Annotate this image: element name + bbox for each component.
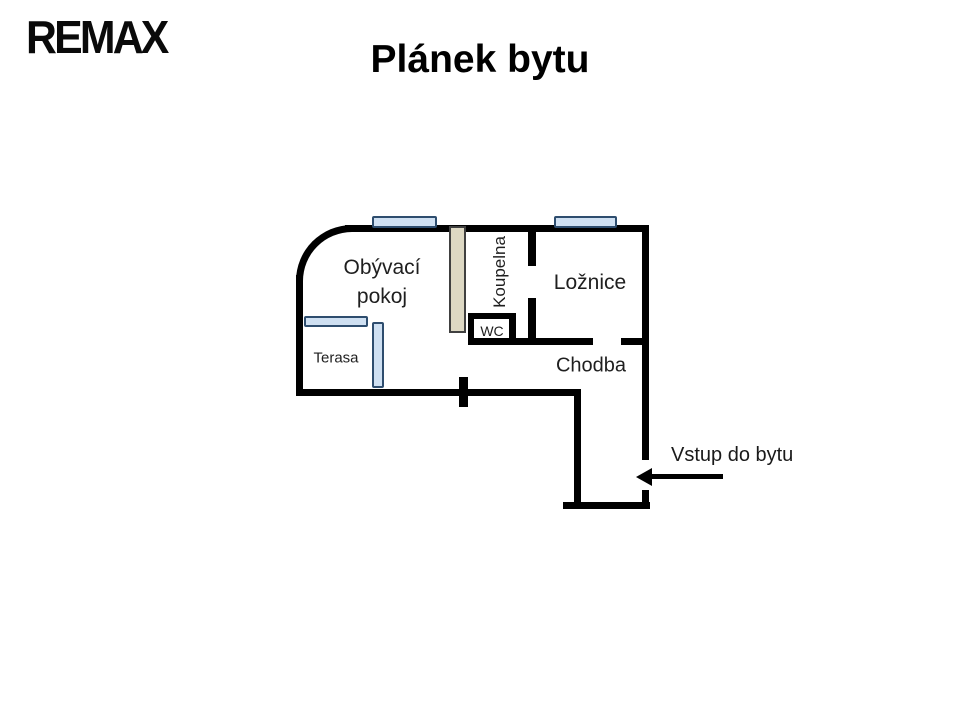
- label-hallway: Chodba: [556, 355, 626, 378]
- window-bedroom: [554, 216, 617, 228]
- label-terrace: Terasa: [313, 350, 358, 367]
- wall-door-stub: [459, 377, 468, 407]
- wall-hallway-top-left: [468, 338, 593, 345]
- wall-hallway-top-right: [621, 338, 649, 345]
- label-entrance: Vstup do bytu: [671, 444, 793, 467]
- wall-wc-left: [468, 313, 474, 345]
- entrance-arrow-icon: [636, 468, 652, 486]
- wall-left: [296, 275, 303, 396]
- entrance-arrow-shaft: [650, 474, 723, 479]
- wall-wc-right: [509, 313, 516, 345]
- label-bedroom: Ložnice: [554, 271, 626, 295]
- label-living-room: Obývací pokoj: [343, 253, 420, 311]
- wall-right-entry-stub: [642, 490, 649, 509]
- wall-bottom-main: [296, 389, 581, 396]
- wall-bathroom-bedroom-top: [528, 225, 536, 266]
- label-wc: WC: [480, 323, 503, 339]
- page-title: Plánek bytu: [0, 38, 960, 82]
- label-bathroom: Koupelna: [490, 236, 510, 308]
- label-living-room-line1: Obývací: [343, 253, 420, 282]
- window-living-room: [372, 216, 437, 228]
- label-living-room-line2: pokoj: [343, 282, 420, 311]
- partition-panel: [449, 226, 466, 333]
- window-terrace-top: [304, 316, 368, 327]
- wall-bottom-entry: [563, 502, 650, 509]
- window-terrace-right: [372, 322, 384, 388]
- wall-corridor-left: [574, 389, 581, 509]
